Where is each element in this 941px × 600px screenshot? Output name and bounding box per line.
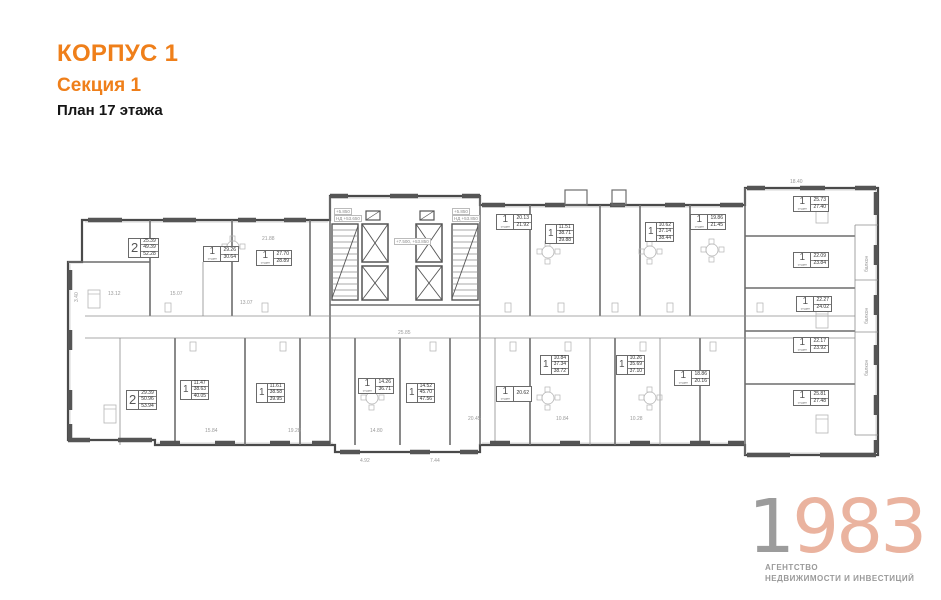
agency-logo: 1983 АГЕНТСТВО НЕДВИЖИМОСТИ И ИНВЕСТИЦИЙ — [748, 492, 938, 584]
chair-icon — [537, 395, 542, 400]
chair-icon — [657, 249, 662, 254]
bath-fixture-icon — [612, 303, 618, 312]
building-outline — [68, 188, 878, 455]
chair-icon — [545, 259, 550, 264]
chair-icon — [647, 405, 652, 410]
chair-icon — [719, 247, 724, 252]
chair-icon — [545, 387, 550, 392]
chair-icon — [545, 241, 550, 246]
chair-icon — [361, 395, 366, 400]
bath-fixture-icon — [640, 342, 646, 351]
bath-fixture-icon — [430, 342, 436, 351]
bath-fixture-icon — [667, 303, 673, 312]
bath-fixture-icon — [558, 303, 564, 312]
chair-icon — [369, 405, 374, 410]
bath-fixture-icon — [165, 303, 171, 312]
chair-icon — [555, 395, 560, 400]
table-icon — [542, 246, 554, 258]
chair-icon — [647, 241, 652, 246]
bath-fixture-icon — [505, 303, 511, 312]
table-icon — [644, 246, 656, 258]
stair-flight-line — [452, 226, 478, 298]
chair-icon — [657, 395, 662, 400]
bath-fixture-icon — [565, 342, 571, 351]
table-icon — [227, 241, 239, 253]
table-icon — [366, 392, 378, 404]
chair-icon — [639, 395, 644, 400]
chair-icon — [537, 249, 542, 254]
chair-icon — [701, 247, 706, 252]
bath-fixture-icon — [280, 342, 286, 351]
chair-icon — [379, 395, 384, 400]
table-icon — [706, 244, 718, 256]
shaft-stub — [565, 190, 587, 205]
bed-icon — [816, 310, 828, 328]
bed-icon — [816, 415, 828, 433]
chair-icon — [647, 259, 652, 264]
bed-icon — [816, 205, 828, 223]
bed-icon — [104, 405, 116, 423]
table-icon — [644, 392, 656, 404]
chair-icon — [222, 244, 227, 249]
chair-icon — [555, 249, 560, 254]
chair-icon — [647, 387, 652, 392]
bed-icon — [88, 290, 100, 308]
chair-icon — [240, 244, 245, 249]
bath-fixture-icon — [757, 303, 763, 312]
bath-fixture-icon — [190, 342, 196, 351]
chair-icon — [709, 257, 714, 262]
bath-fixture-icon — [510, 342, 516, 351]
bath-fixture-icon — [262, 303, 268, 312]
floor-plan-page: КОРПУС 1 Секция 1 План 17 этажа 225.3949… — [0, 0, 941, 600]
table-icon — [542, 392, 554, 404]
chair-icon — [369, 387, 374, 392]
logo-year-prefix: 1 — [748, 484, 792, 570]
chair-icon — [545, 405, 550, 410]
logo-tagline-line2: НЕДВИЖИМОСТИ И ИНВЕСТИЦИЙ — [765, 574, 938, 584]
vent-hatch — [420, 211, 434, 220]
logo-year: 1983 — [748, 492, 938, 562]
chair-icon — [709, 239, 714, 244]
vent-hatch — [366, 211, 380, 220]
stair-flight-line — [332, 226, 358, 298]
logo-year-rest: 983 — [792, 484, 924, 570]
bath-fixture-icon — [710, 342, 716, 351]
